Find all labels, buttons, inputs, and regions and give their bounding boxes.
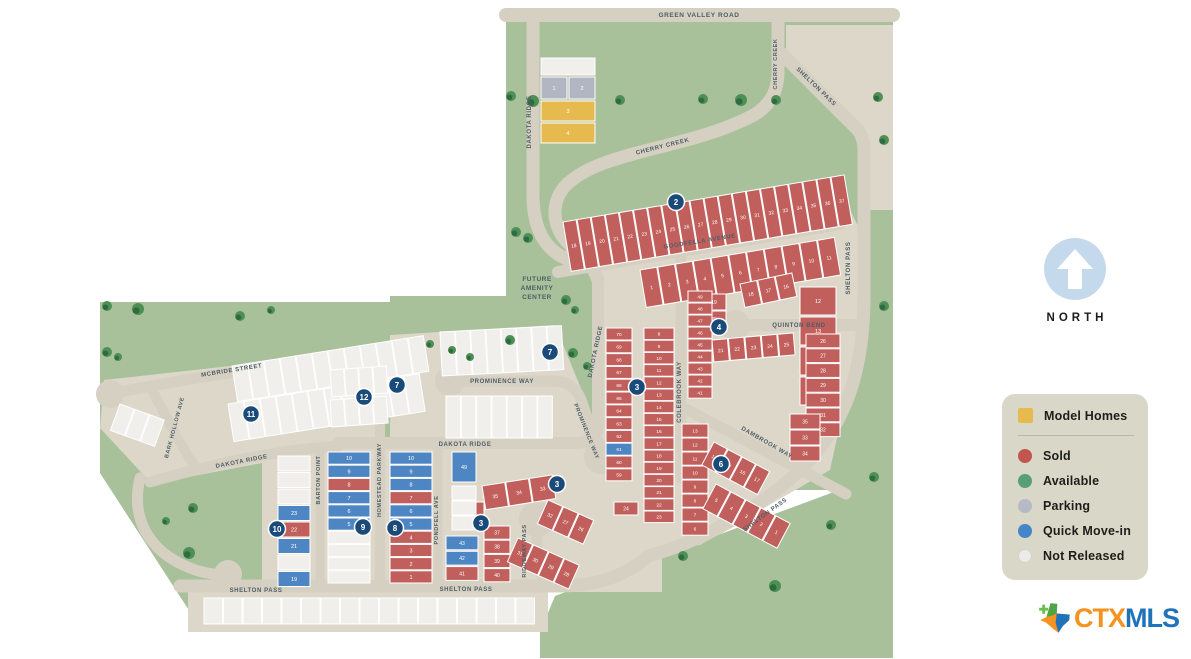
lot[interactable] (282, 598, 301, 624)
lot[interactable] (538, 396, 553, 438)
lot-number: 11 (657, 368, 662, 374)
lot-number: 62 (616, 434, 622, 440)
street-label: SHELTON PASS (440, 587, 493, 593)
tree-icon (507, 95, 513, 101)
lot-number: 11 (693, 456, 698, 462)
lot-number: 26 (820, 339, 826, 345)
lot-number: 8 (694, 498, 697, 504)
tree-icon (449, 349, 453, 353)
lot-number: 3 (566, 109, 569, 115)
lot[interactable] (455, 330, 472, 375)
tree-icon (506, 339, 512, 345)
lot-number: 23 (291, 511, 297, 517)
lot-number: 19 (291, 577, 297, 583)
phase-marker-number: 4 (717, 323, 722, 332)
lot-number: 65 (616, 396, 622, 402)
tree-icon (512, 231, 518, 237)
lot[interactable] (204, 598, 223, 624)
lot-number: 6 (409, 509, 412, 515)
lot-number: 15 (656, 417, 662, 423)
lot-number: 37 (494, 531, 500, 537)
lot[interactable] (321, 598, 340, 624)
legend-label: Available (1043, 474, 1099, 488)
lot[interactable] (373, 396, 388, 424)
lot-number: 5 (409, 522, 412, 528)
lot[interactable] (471, 330, 488, 375)
phase-marker-number: 12 (360, 393, 369, 402)
street-label: RIDGEWAY PASS (522, 524, 528, 577)
lot-number: 1 (552, 86, 555, 92)
lot[interactable] (399, 598, 418, 624)
lot-group: 706968676665646362616059 (606, 328, 632, 481)
lot-number: 6 (347, 509, 350, 515)
lot[interactable] (380, 598, 399, 624)
lot-group: 353334 (790, 414, 820, 461)
tree-icon (679, 555, 685, 561)
lot-number: 41 (697, 390, 703, 396)
lot[interactable] (243, 598, 262, 624)
phase-marker-number: 3 (635, 383, 640, 392)
lot-number: 3 (409, 549, 412, 555)
lot-group: 131211109876 (682, 424, 708, 535)
lot-number: 45 (697, 342, 703, 348)
lot-number: 9 (658, 344, 661, 350)
legend-dot (1018, 474, 1032, 488)
lot-group: 37383940 (484, 526, 510, 582)
lot-number: 46 (697, 330, 703, 336)
site-map-page: { "colors":{ "sold":"#c05f5c","quick":"#… (0, 0, 1191, 659)
lot-number: 7 (694, 512, 697, 518)
phase-marker-number: 3 (479, 519, 484, 528)
lot-number: 42 (459, 556, 465, 562)
north-indicator: NORTH (1042, 238, 1108, 324)
lot[interactable] (263, 598, 282, 624)
legend-item-sold: Sold (1018, 449, 1134, 463)
lot-number: 20 (656, 478, 662, 484)
tree-icon (874, 96, 880, 102)
north-label: NORTH (1042, 312, 1108, 324)
lot-number: 47 (697, 318, 703, 324)
lot[interactable] (541, 58, 595, 75)
lot[interactable] (278, 456, 310, 471)
lot-group: 49 (452, 452, 476, 482)
legend-label: Parking (1043, 499, 1090, 513)
lot-number: 39 (494, 559, 500, 565)
lot-group (204, 598, 535, 624)
lot[interactable] (330, 399, 345, 427)
lot[interactable] (458, 598, 477, 624)
lot-number: 14 (656, 405, 662, 411)
lot[interactable] (440, 331, 457, 376)
lot-number: 31 (820, 413, 826, 419)
legend-dot (1018, 449, 1032, 463)
street-label: SHELTON PASS (846, 242, 852, 295)
amenity-label-line: AMENITY (521, 285, 554, 292)
phase-marker-number: 6 (719, 460, 724, 469)
lot[interactable] (516, 598, 535, 624)
tree-icon (184, 551, 191, 558)
lot-number: 63 (616, 421, 622, 427)
legend-dot (1018, 499, 1032, 513)
lot-number: 70 (616, 332, 622, 338)
lot[interactable] (492, 396, 507, 438)
lot[interactable] (360, 598, 379, 624)
logo-ctx: CTX (1074, 603, 1125, 633)
tree-icon (736, 98, 743, 105)
tree-icon (569, 352, 575, 358)
lot-number: 59 (616, 473, 622, 479)
tree-icon (427, 343, 431, 347)
street-label: GREEN VALLEY ROAD (658, 12, 739, 19)
lot-number: 30 (820, 398, 826, 404)
lot-number: 34 (802, 451, 808, 457)
lot[interactable] (278, 489, 310, 504)
street-label: CHERRY CREEK (773, 39, 779, 90)
lot[interactable] (341, 598, 360, 624)
tree-icon (827, 524, 833, 530)
legend-label: Model Homes (1044, 409, 1127, 423)
street-label: DAKOTA RIDGE (439, 442, 492, 448)
lot-group (541, 58, 595, 75)
lot-number: 9 (694, 484, 697, 490)
lot-number: 21 (656, 490, 662, 496)
phase-marker-number: 7 (548, 348, 553, 357)
lot-number: 12 (692, 442, 698, 448)
lot-group: 24 (614, 502, 638, 515)
lot[interactable] (419, 598, 438, 624)
lot[interactable] (330, 369, 345, 397)
lot-number: 2 (580, 86, 583, 92)
lot-number: 9 (409, 469, 412, 475)
legend-divider (1018, 435, 1134, 436)
phase-marker-number: 10 (273, 525, 282, 534)
lot[interactable] (328, 544, 370, 556)
logo-text: CTXMLS (1074, 603, 1179, 634)
lot-number: 4 (409, 535, 412, 541)
north-arrow-icon (1044, 238, 1106, 300)
lot[interactable] (452, 486, 476, 500)
lot-number: 12 (815, 299, 821, 305)
lot-number: 21 (291, 544, 297, 550)
tree-icon (268, 309, 272, 313)
lot[interactable] (328, 558, 370, 570)
lot-number: 32 (820, 428, 826, 434)
lot-number: 67 (616, 370, 622, 376)
lot[interactable] (516, 327, 533, 372)
lot[interactable] (477, 396, 492, 438)
lot-number: 19 (656, 466, 662, 472)
legend-label: Sold (1043, 449, 1071, 463)
lot[interactable] (497, 598, 516, 624)
lot-number: 27 (820, 354, 826, 360)
lot-number: 7 (347, 496, 350, 502)
lot-number: 22 (656, 502, 662, 508)
phase-marker-number: 11 (247, 410, 256, 419)
lot[interactable] (486, 329, 503, 374)
lot-number: 1 (409, 575, 412, 581)
lot-number: 10 (656, 356, 662, 362)
tree-icon (467, 356, 471, 360)
tree-icon (870, 476, 876, 482)
lot-number: 42 (697, 378, 703, 384)
lot-number: 66 (616, 383, 622, 389)
street-label: PROMINENCE WAY (470, 379, 534, 385)
street-label: HOMESTEAD PARKWAY (377, 443, 383, 517)
lot[interactable] (438, 598, 457, 624)
phase-marker-number: 9 (361, 523, 366, 532)
lot-number: 25 (783, 342, 789, 348)
lot-number: 69 (616, 345, 622, 351)
street-label: QUINTON BEND (772, 323, 825, 329)
street-label: DAKOTA RIDGE (527, 96, 533, 149)
lot-number: 38 (494, 545, 500, 551)
lot-number: 16 (656, 429, 662, 435)
lot-number: 12 (656, 380, 662, 386)
lot-number: 44 (697, 354, 703, 360)
phase-marker-number: 7 (395, 381, 400, 390)
street-label: PONDFELL AVE (434, 496, 440, 545)
lot-number: 43 (697, 366, 703, 372)
lot-number: 10 (346, 456, 352, 462)
street-label: COLEBROOK WAY (677, 361, 683, 423)
tree-icon (189, 507, 195, 513)
lot-number: 49 (461, 465, 467, 471)
future-amenity-label: FUTUREAMENITYCENTER (521, 276, 554, 301)
lot-number: 68 (616, 357, 622, 363)
lot-number: 35 (802, 419, 808, 425)
lot-number: 28 (820, 368, 826, 374)
legend-panel: Model Homes SoldAvailableParkingQuick Mo… (1002, 394, 1148, 580)
lot-group: 891011121314151617181920212223 (644, 328, 674, 523)
lot[interactable] (452, 501, 476, 515)
lot-number: 9 (347, 469, 350, 475)
lot-number: 10 (692, 470, 698, 476)
tree-icon (770, 584, 777, 591)
tree-icon (699, 98, 705, 104)
legend-item-not-released: Not Released (1018, 549, 1134, 563)
lot-group: 1098765 (328, 452, 370, 583)
lot[interactable] (477, 598, 496, 624)
legend-item-quick-move-in: Quick Move-in (1018, 524, 1134, 538)
phase-marker-number: 3 (555, 480, 560, 489)
tree-icon (115, 356, 119, 360)
lot-number: 7 (409, 496, 412, 502)
lot[interactable] (278, 555, 310, 570)
lot-number: 49 (697, 294, 703, 300)
tree-icon (772, 99, 778, 105)
lot-number: 23 (656, 515, 662, 521)
street-label: BARTON POINT (316, 455, 322, 504)
lot-number: 8 (658, 332, 661, 338)
legend-dot (1018, 549, 1032, 563)
lot-group (446, 396, 552, 438)
lot[interactable] (328, 571, 370, 583)
lot-number: 10 (408, 456, 414, 462)
lot-number: 21 (718, 348, 724, 354)
lot-group: 434241 (446, 536, 478, 580)
logo-mls: MLS (1125, 603, 1179, 633)
tree-icon (524, 237, 530, 243)
tree-icon (584, 365, 588, 369)
legend-label: Quick Move-in (1043, 524, 1131, 538)
tree-icon (572, 309, 576, 313)
lot[interactable] (446, 396, 461, 438)
lot[interactable] (501, 328, 518, 373)
tree-icon (880, 305, 886, 311)
lot-number: 43 (459, 541, 465, 547)
lot-number: 13 (692, 428, 698, 434)
tree-icon (133, 307, 140, 314)
lot[interactable] (523, 396, 538, 438)
tree-icon (880, 139, 886, 145)
lot-number: 24 (767, 344, 773, 350)
lot[interactable] (302, 598, 321, 624)
lot-number: 41 (459, 571, 465, 577)
lot-number: 23 (751, 345, 757, 351)
model-homes-swatch (1018, 408, 1033, 423)
lot[interactable] (507, 396, 522, 438)
lot-number: 6 (694, 526, 697, 532)
lot-number: 22 (734, 346, 740, 352)
texas-icon (1038, 601, 1072, 635)
ctxmls-logo: CTXMLS (1038, 601, 1179, 635)
tree-icon (616, 99, 622, 105)
legend-item-available: Available (1018, 474, 1134, 488)
amenity-label-line: CENTER (522, 294, 552, 301)
phase-marker-number: 8 (393, 524, 398, 533)
lot-number: 4 (566, 131, 569, 137)
lot-number: 64 (616, 409, 622, 415)
lot[interactable] (278, 473, 310, 488)
lot-number: 17 (656, 441, 662, 447)
lot-number: 8 (347, 483, 350, 489)
lot-number: 33 (802, 435, 808, 441)
legend-label: Not Released (1043, 549, 1125, 563)
lot-number: 40 (494, 573, 500, 579)
tree-icon (163, 520, 167, 524)
lot-number: 60 (616, 460, 622, 466)
lot[interactable] (224, 598, 243, 624)
lot-group: 10987654321 (390, 452, 432, 583)
lot-number: 29 (820, 383, 826, 389)
street-label: SHELTON PASS (230, 588, 283, 594)
lot[interactable] (461, 396, 476, 438)
lot-number: 18 (656, 454, 662, 460)
legend-item-parking: Parking (1018, 499, 1134, 513)
lot-number: 48 (697, 306, 703, 312)
lot-group: 494847464544434241 (688, 291, 712, 398)
tree-icon (103, 305, 109, 311)
lot-number: 8 (409, 483, 412, 489)
amenity-label-line: FUTURE (522, 276, 552, 283)
lot-number: 13 (656, 393, 662, 399)
lot-number: 24 (623, 506, 629, 512)
tree-icon (236, 315, 242, 321)
legend-dot (1018, 524, 1032, 538)
phase-marker-number: 2 (674, 198, 679, 207)
lot[interactable] (373, 366, 388, 394)
tree-icon (103, 351, 109, 357)
lot-number: 61 (616, 447, 622, 453)
lot-number: 22 (291, 528, 297, 534)
lot-number: 5 (347, 522, 350, 528)
legend-item-model-homes: Model Homes (1018, 408, 1134, 423)
lot-number: 2 (409, 562, 412, 568)
tree-icon (562, 299, 568, 305)
